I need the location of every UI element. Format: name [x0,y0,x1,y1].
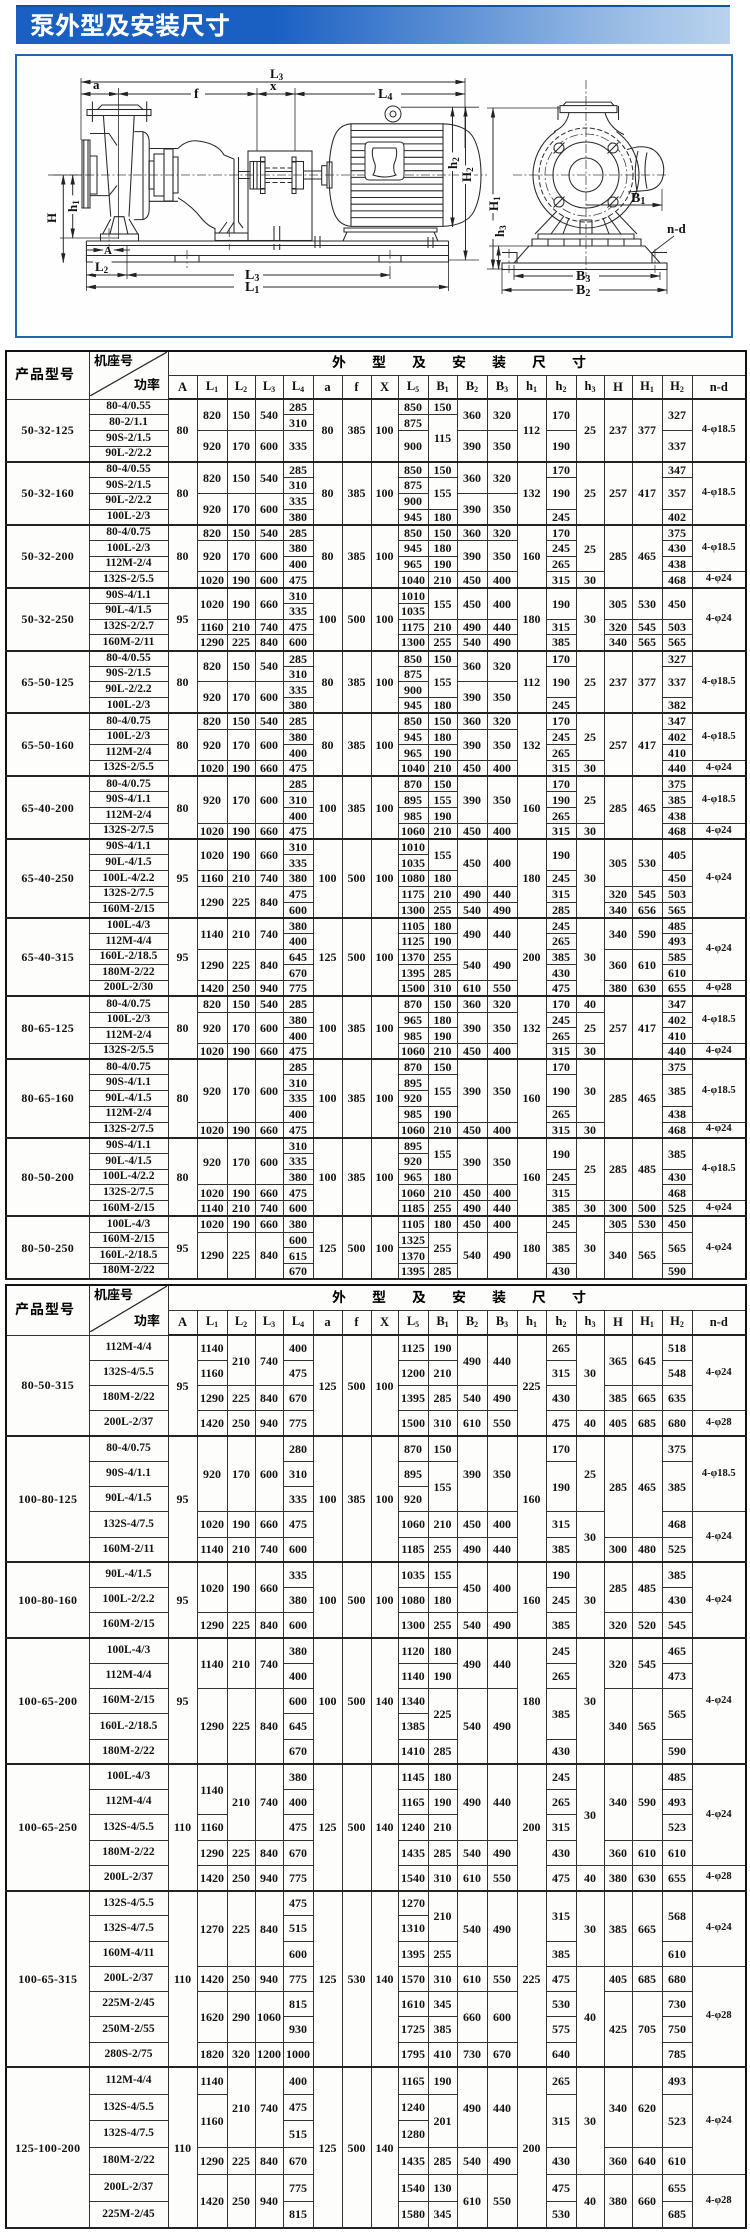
svg-text:L4: L4 [378,87,392,103]
svg-text:B2: B2 [576,283,590,299]
svg-text:H: H [44,213,59,223]
svg-text:A: A [104,245,112,257]
svg-text:B1: B1 [631,191,645,207]
svg-text:n-d: n-d [667,221,687,236]
svg-text:x: x [270,78,277,93]
svg-text:a: a [93,77,100,92]
svg-text:f: f [194,87,199,102]
